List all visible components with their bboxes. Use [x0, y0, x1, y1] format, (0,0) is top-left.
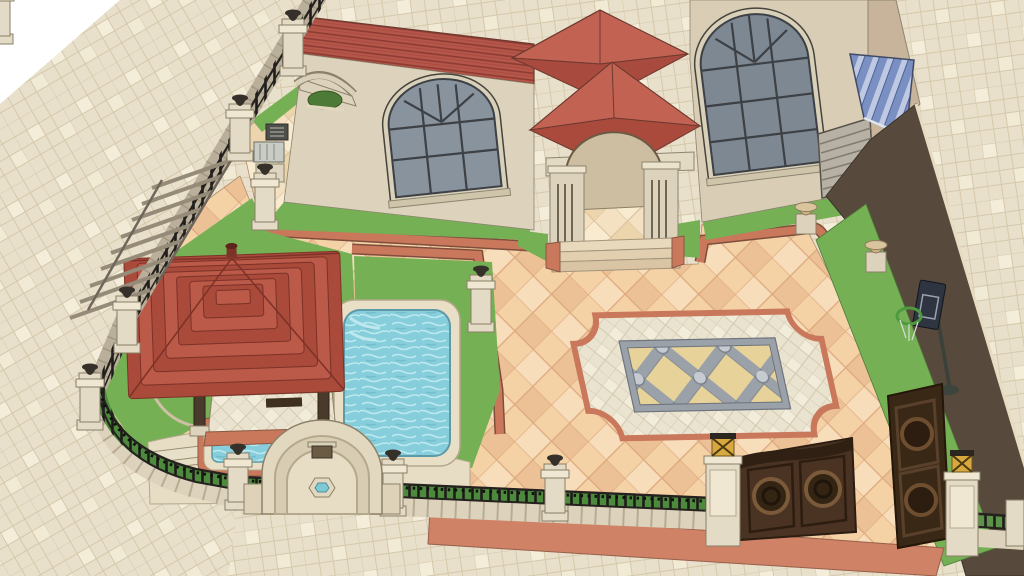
gazebo-table: [266, 397, 302, 407]
fountain-water: [315, 483, 329, 492]
fountain-spout: [312, 446, 332, 458]
medallion-lattice: [628, 345, 783, 405]
corner-pillar-right: [1006, 500, 1024, 546]
villa-3d-render: [0, 0, 1024, 576]
courtyard-medallion: [567, 311, 842, 439]
render-viewport: [0, 0, 1024, 576]
gate-leaf-open: [888, 384, 950, 548]
gazebo-post: [194, 394, 205, 430]
porch-pillar-right: [644, 164, 678, 250]
gate-leaf-closed: [736, 438, 856, 540]
